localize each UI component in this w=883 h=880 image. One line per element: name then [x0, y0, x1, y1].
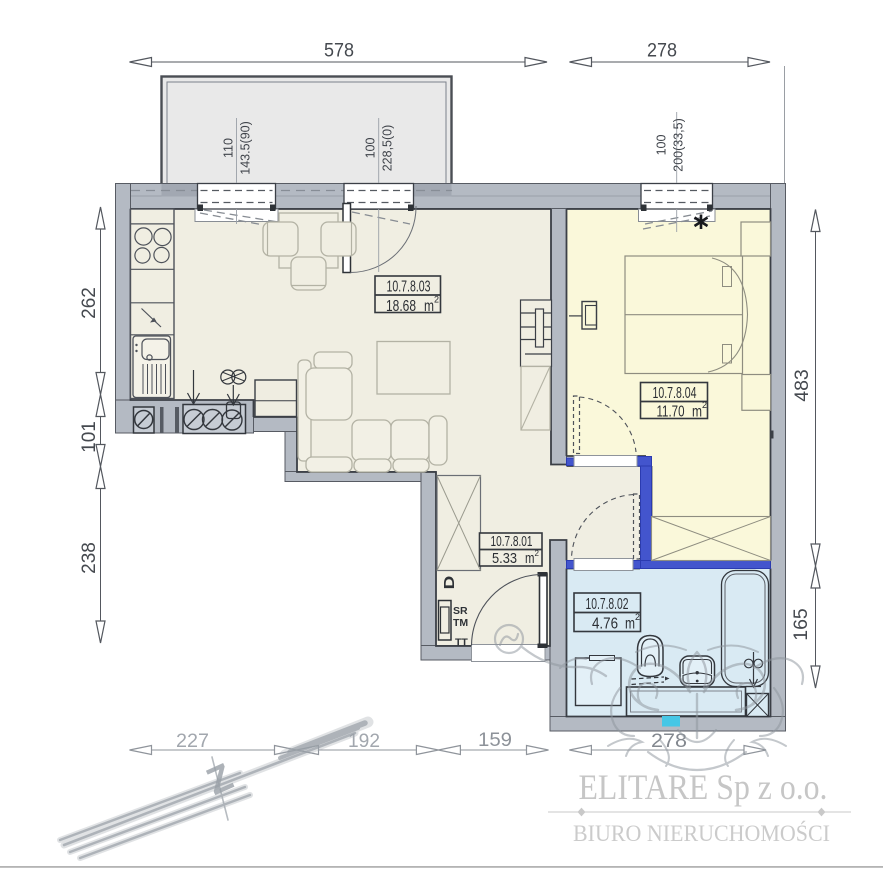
svg-text:11.70: 11.70: [657, 404, 685, 421]
svg-text:101: 101: [79, 421, 100, 453]
svg-text:159: 159: [478, 730, 512, 751]
svg-text:m: m: [424, 298, 434, 315]
svg-text:ELITARE Sp z o.o.: ELITARE Sp z o.o.: [579, 767, 828, 807]
svg-text:10.7.8.03: 10.7.8.03: [387, 279, 431, 296]
svg-text:278: 278: [647, 41, 677, 62]
svg-text:2: 2: [702, 400, 707, 410]
svg-text:BIURO NIERUCHOMOŚCI: BIURO NIERUCHOMOŚCI: [573, 820, 830, 846]
svg-text:TT: TT: [455, 637, 468, 649]
svg-text:100: 100: [363, 138, 377, 159]
svg-text:483: 483: [791, 369, 813, 402]
svg-text:262: 262: [79, 287, 100, 319]
svg-text:200(33,5): 200(33,5): [671, 118, 685, 172]
svg-text:m: m: [692, 404, 702, 421]
svg-text:578: 578: [324, 41, 354, 62]
svg-text:227: 227: [176, 731, 209, 752]
svg-text:10.7.8.01: 10.7.8.01: [491, 534, 533, 550]
svg-text:100: 100: [654, 135, 668, 156]
svg-text:110: 110: [221, 138, 235, 158]
svg-text:m: m: [525, 551, 535, 567]
svg-text:m: m: [625, 616, 635, 633]
svg-text:2: 2: [535, 549, 540, 558]
svg-text:2: 2: [434, 295, 439, 305]
svg-text:18.68: 18.68: [386, 298, 416, 315]
svg-text:4.76: 4.76: [592, 616, 618, 633]
svg-text:D: D: [441, 576, 458, 590]
svg-text:5.33: 5.33: [492, 551, 517, 567]
svg-text:165: 165: [790, 608, 812, 641]
svg-text:SR: SR: [453, 605, 468, 617]
svg-text:2: 2: [635, 612, 640, 622]
svg-text:10.7.8.02: 10.7.8.02: [586, 596, 629, 613]
svg-text:TM: TM: [453, 617, 468, 629]
svg-text:228,5(0): 228,5(0): [380, 125, 394, 172]
svg-text:10.7.8.04: 10.7.8.04: [653, 385, 697, 402]
svg-text:238: 238: [79, 542, 100, 574]
svg-text:143.5(90): 143.5(90): [238, 121, 252, 175]
